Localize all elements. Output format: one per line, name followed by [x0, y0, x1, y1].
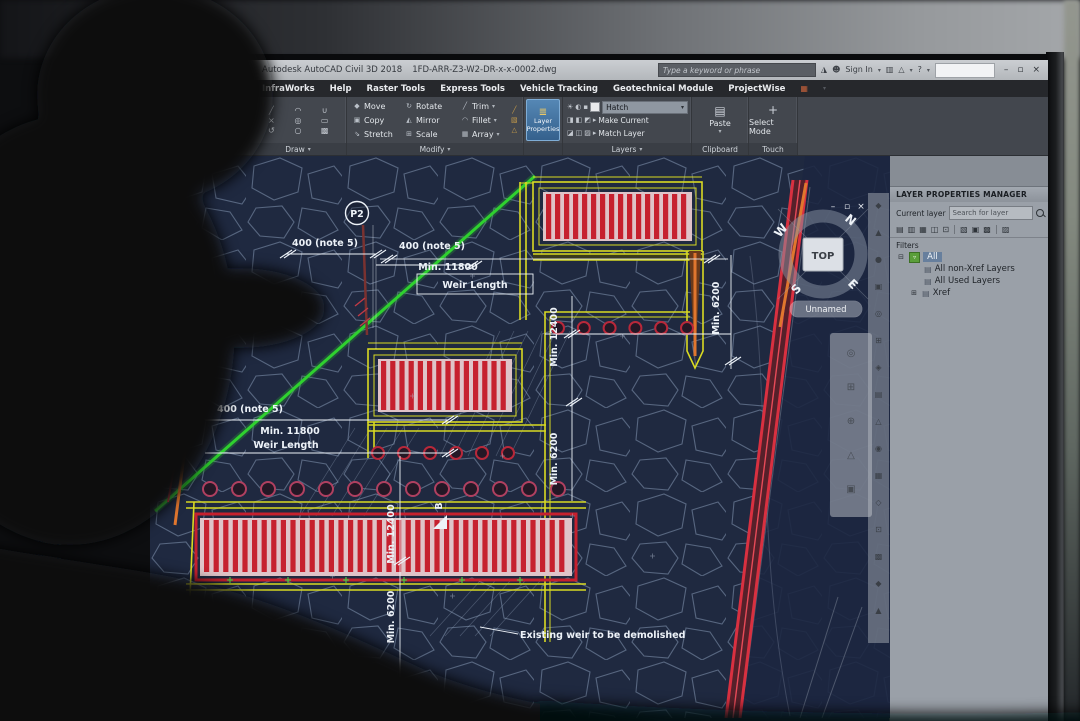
layer-manager-title: LAYER PROPERTIES MANAGER — [890, 187, 1048, 202]
palette-icon[interactable]: ▣ — [846, 484, 855, 495]
palette-top-strip — [890, 156, 1048, 187]
layer-manager-toolbar: ▤ ▥ ▦ ◫ ⊡ ▧ ▣ ▩ ▨ — [890, 222, 1048, 238]
navbar-icon[interactable]: ◆ — [875, 579, 882, 588]
modify-extra-tools: ╱ ▧ △ — [509, 106, 520, 134]
tab-help[interactable]: Help — [330, 84, 352, 94]
dim-min-12400: Min. 12400 — [386, 504, 397, 564]
draw-tool-icon[interactable]: ○ — [285, 126, 312, 135]
layer-toolbar-icon[interactable]: ⊡ — [942, 225, 949, 234]
tab-extra-caret-icon[interactable]: ▾ — [823, 85, 826, 92]
chevron-down-icon: ▾ — [308, 146, 311, 153]
layer-toolbar-icon[interactable]: ▩ — [983, 225, 991, 234]
layer-properties-manager: LAYER PROPERTIES MANAGER Current layer ▤… — [889, 156, 1048, 721]
layer-tool-icon: ◨ — [567, 116, 574, 124]
rotate-icon: ↻ — [405, 102, 413, 110]
navbar-icon[interactable]: ◇ — [875, 498, 882, 507]
touch-panel-label: Touch — [749, 143, 797, 155]
expander-closed-icon[interactable]: ⊞ — [911, 289, 919, 297]
navbar-icon[interactable]: ▲ — [875, 606, 882, 615]
layer-on-icon[interactable]: ☀ — [567, 103, 573, 111]
navbar-icon[interactable]: ● — [875, 255, 882, 264]
scale-button[interactable]: ⊞Scale — [405, 127, 461, 141]
p2-label: P2 — [350, 209, 364, 220]
filters-label: Filters — [890, 238, 1048, 251]
dim-400-note5: 400 (note 5) — [292, 238, 358, 249]
draw-tool-icon[interactable]: ∪ — [311, 106, 338, 115]
sign-in-caret-icon[interactable]: ▾ — [878, 67, 881, 74]
tab-projectwise[interactable]: ProjectWise — [728, 84, 785, 94]
dim-min-6200: Min. 6200 — [386, 590, 397, 643]
titlebar-blank-field — [935, 63, 995, 78]
layer-toolbar-icon[interactable]: ▥ — [908, 225, 916, 234]
autocad-window: Autodesk AutoCAD Civil 3D 2018 1FD-ARR-Z… — [150, 60, 1048, 721]
dim-min-6200: Min. 6200 — [711, 281, 722, 334]
navbar-icon[interactable]: △ — [875, 417, 882, 426]
make-current-icon: ▸ — [593, 116, 597, 124]
tree-item-xref[interactable]: ⊞ ▤ Xref — [898, 287, 1048, 299]
navbar-icon[interactable]: ▩ — [875, 552, 883, 561]
dim-min-12400: Min. 12400 — [549, 307, 560, 367]
draw-tool-icon[interactable]: ╱ — [258, 106, 285, 115]
select-mode-button[interactable]: + Select Mode — [749, 103, 797, 137]
layer-toolbar-icon[interactable]: ▤ — [896, 225, 904, 234]
chevron-down-icon: ▾ — [492, 103, 495, 110]
view-pill-label: Unnamed — [805, 305, 846, 315]
modify-extra-icon[interactable]: ▧ — [511, 116, 518, 124]
navbar-icon[interactable]: ⊡ — [875, 525, 882, 534]
tab-vehicle-tracking[interactable]: Vehicle Tracking — [520, 84, 598, 94]
section-b-label: B — [434, 502, 445, 509]
close-button[interactable]: × — [1032, 65, 1040, 75]
draw-tool-icon[interactable]: × — [258, 116, 285, 125]
tab-extra-icon[interactable]: ▦ — [800, 84, 808, 93]
fillet-button[interactable]: ◠Fillet▾ — [461, 113, 509, 127]
navbar-icon[interactable]: ▲ — [875, 228, 882, 237]
draw-tool-icon[interactable]: ▩ — [311, 126, 338, 135]
blurred-wall — [1064, 0, 1080, 721]
stretch-icon: ⇘ — [353, 130, 361, 138]
navbar-icon[interactable]: ◉ — [875, 444, 882, 453]
dim-min-6200: Min. 6200 — [549, 432, 560, 485]
monitor-bezel-right — [1046, 52, 1064, 721]
folder-icon: ▤ — [922, 289, 930, 298]
modify-extra-icon[interactable]: △ — [511, 126, 518, 134]
photo-of-monitor: Autodesk AutoCAD Civil 3D 2018 1FD-ARR-Z… — [0, 0, 1080, 721]
scale-icon: ⊞ — [405, 130, 413, 138]
help-caret-icon[interactable]: ▾ — [927, 67, 930, 74]
user-icon: ☻ — [832, 66, 840, 74]
modify-extra-icon[interactable]: ╱ — [511, 106, 518, 114]
alert-caret-icon[interactable]: ▾ — [910, 67, 913, 74]
search-icon[interactable] — [1036, 209, 1044, 217]
layer-properties-button[interactable]: ≣ Layer Properties — [526, 99, 560, 141]
layer-list-empty-area — [890, 299, 1048, 721]
layer-tool-icon: ◩ — [584, 116, 591, 124]
ribbon: ╱◠∪×◎▭↺○▩ Draw▾ ◆Move ↻Rotate ╱Trim▾ ▣Co… — [150, 97, 1048, 156]
folder-icon: ▤ — [924, 277, 932, 286]
layer-filter-tree: ⊟ ▿ All ▤ All non-Xref Layers ▤ All Used… — [890, 251, 1048, 299]
layer-tool-icon: ◪ — [567, 129, 574, 137]
layer-toolbar-icon[interactable]: ▨ — [1002, 225, 1010, 234]
clipboard-panel-label: Clipboard — [692, 143, 748, 155]
make-current-button[interactable]: ◨ ◧ ◩ ▸ Make Current — [567, 114, 691, 126]
modify-panel-label[interactable]: Modify▾ — [347, 143, 523, 155]
trim-icon: ╱ — [461, 102, 469, 110]
layer-color-chip[interactable] — [590, 102, 600, 112]
copy-button[interactable]: ▣Copy — [353, 113, 405, 127]
folder-icon: ▤ — [924, 265, 932, 274]
sign-in-button[interactable]: Sign In — [845, 66, 872, 74]
layer-freeze-icon[interactable]: ◐ — [575, 103, 581, 111]
trim-button[interactable]: ╱Trim▾ — [461, 99, 509, 113]
title-bar: Autodesk AutoCAD Civil 3D 2018 1FD-ARR-Z… — [150, 60, 1048, 80]
chevron-down-icon: ▾ — [447, 146, 450, 153]
document-name: 1FD-ARR-Z3-W2-DR-x-x-0002.dwg — [412, 65, 556, 75]
rotate-button[interactable]: ↻Rotate — [405, 99, 461, 113]
chevron-down-icon: ▾ — [681, 104, 684, 111]
tab-geotechnical-module[interactable]: Geotechnical Module — [613, 84, 713, 94]
layer-select-dropdown[interactable]: Hatch ▾ — [602, 101, 688, 114]
dim-weir-length: Weir Length — [442, 280, 507, 291]
dim-400-note5: 400 (note 5) — [399, 241, 465, 252]
navbar-icon[interactable]: ▦ — [875, 471, 883, 480]
all-filter-icon: ▿ — [909, 252, 920, 263]
palette-icon[interactable]: △ — [847, 450, 855, 461]
layer-tool-icon: ◧ — [576, 116, 583, 124]
layers-panel-label[interactable]: Layers▾ — [563, 143, 691, 155]
draw-tool-icon[interactable]: ▭ — [311, 116, 338, 125]
viewcube-top-face[interactable]: TOP — [812, 251, 835, 262]
fillet-icon: ◠ — [461, 116, 469, 124]
navbar-icon[interactable]: ◎ — [875, 309, 882, 318]
clipboard-panel: ▤ Paste ▾ Clipboard — [692, 97, 749, 155]
layer-toolbar-icon[interactable]: ◫ — [931, 225, 939, 234]
expander-open-icon[interactable]: ⊟ — [898, 253, 906, 261]
mirror-button[interactable]: ◭Mirror — [405, 113, 461, 127]
array-button[interactable]: ▦Array▾ — [461, 127, 509, 141]
doc-restore-button[interactable]: ▫ — [844, 202, 850, 212]
layers-panel: ☀ ◐ ▪ Hatch ▾ ◨ ◧ ◩ ▸ Make — [563, 97, 692, 155]
draw-tool-icon[interactable]: ↺ — [258, 126, 285, 135]
draw-tool-icon[interactable]: ◠ — [285, 106, 312, 115]
autodesk-logo-icon: ◮ — [821, 66, 827, 74]
layer-toolbar-icon[interactable]: ▣ — [972, 225, 980, 234]
navbar-icon[interactable]: ⊞ — [875, 336, 882, 345]
draw-panel: ╱◠∪×◎▭↺○▩ Draw▾ — [250, 97, 347, 155]
palette-icon[interactable]: ⊕ — [847, 416, 855, 427]
layer-tool-icon: ▨ — [584, 129, 591, 137]
tree-item-used[interactable]: ▤ All Used Layers — [898, 275, 1048, 287]
match-layer-button[interactable]: ◪ ◫ ▨ ▸ Match Layer — [567, 127, 691, 139]
app-title: Autodesk AutoCAD Civil 3D 2018 — [262, 65, 402, 75]
chevron-down-icon: ▾ — [494, 117, 497, 124]
navbar-icon[interactable]: ▤ — [875, 390, 883, 399]
view-pill[interactable]: Unnamed — [790, 301, 862, 317]
palette-icon[interactable]: ◎ — [847, 348, 856, 359]
navbar-icon[interactable]: ◆ — [875, 201, 882, 210]
layer-toolbar-icon[interactable]: ▦ — [919, 225, 927, 234]
current-layer-label: Current layer — [896, 209, 945, 218]
stretch-button[interactable]: ⇘Stretch — [353, 127, 405, 141]
move-button[interactable]: ◆Move — [353, 99, 405, 113]
layer-lock-icon[interactable]: ▪ — [583, 103, 588, 111]
paste-button[interactable]: ▤ Paste ▾ — [692, 104, 748, 135]
dim-400-note5: 400 (note 5) — [217, 404, 283, 415]
match-layer-icon: ▸ — [593, 129, 597, 137]
tree-item-all[interactable]: ⊟ ▿ All — [898, 251, 1048, 263]
chevron-down-icon: ▾ — [718, 128, 721, 135]
array-icon: ▦ — [461, 130, 469, 138]
minimize-button[interactable]: – — [1004, 65, 1009, 75]
tab-infraworks[interactable]: InfraWorks — [262, 84, 315, 94]
layer-properties-panel: ≣ Layer Properties — [524, 97, 563, 155]
mirror-icon: ◭ — [405, 116, 413, 124]
touch-panel: + Select Mode Touch — [749, 97, 798, 155]
palette-icon[interactable]: ⊞ — [847, 382, 855, 393]
doc-close-button[interactable]: × — [857, 202, 865, 212]
select-mode-icon: + — [768, 103, 778, 117]
layer-tool-icon: ◫ — [576, 129, 583, 137]
move-icon: ◆ — [353, 102, 361, 110]
dim-min-11800: Min. 11800 — [260, 426, 320, 437]
doc-minimize-button[interactable]: – — [831, 202, 836, 212]
dim-weir-length: Weir Length — [253, 440, 318, 451]
demolish-note: Existing weir to be demolished — [520, 630, 685, 641]
drawing-canvas[interactable]: P2 400 (note 5) 400 (note 5) Min. 11800 … — [150, 156, 889, 721]
tree-item-non-xref[interactable]: ▤ All non-Xref Layers — [898, 263, 1048, 275]
keyword-search-input[interactable] — [658, 63, 816, 77]
blurred-room-background — [0, 0, 1080, 58]
restore-button[interactable]: ▫ — [1017, 65, 1023, 75]
chevron-down-icon: ▾ — [639, 146, 642, 153]
layer-search-input[interactable] — [949, 206, 1033, 220]
store-cart-icon[interactable]: ▥ — [886, 66, 894, 74]
layer-toolbar-icon[interactable]: ▧ — [960, 225, 968, 234]
draw-panel-label[interactable]: Draw▾ — [250, 143, 346, 155]
help-icon[interactable]: ? — [918, 66, 922, 74]
navbar-icon[interactable]: ◈ — [875, 363, 882, 372]
modify-panel: ◆Move ↻Rotate ╱Trim▾ ▣Copy ◭Mirror ◠Fill… — [347, 97, 524, 155]
navbar-icon[interactable]: ▣ — [875, 282, 883, 291]
tab-raster-tools[interactable]: Raster Tools — [367, 84, 426, 94]
tab-express-tools[interactable]: Express Tools — [440, 84, 505, 94]
ribbon-tab-bar: InfraWorks Help Raster Tools Express Too… — [150, 80, 1048, 97]
paste-icon: ▤ — [714, 104, 725, 118]
draw-tool-icon[interactable]: ◎ — [285, 116, 312, 125]
copy-icon: ▣ — [353, 116, 361, 124]
alert-icon[interactable]: △ — [898, 66, 904, 74]
chevron-down-icon: ▾ — [497, 131, 500, 138]
